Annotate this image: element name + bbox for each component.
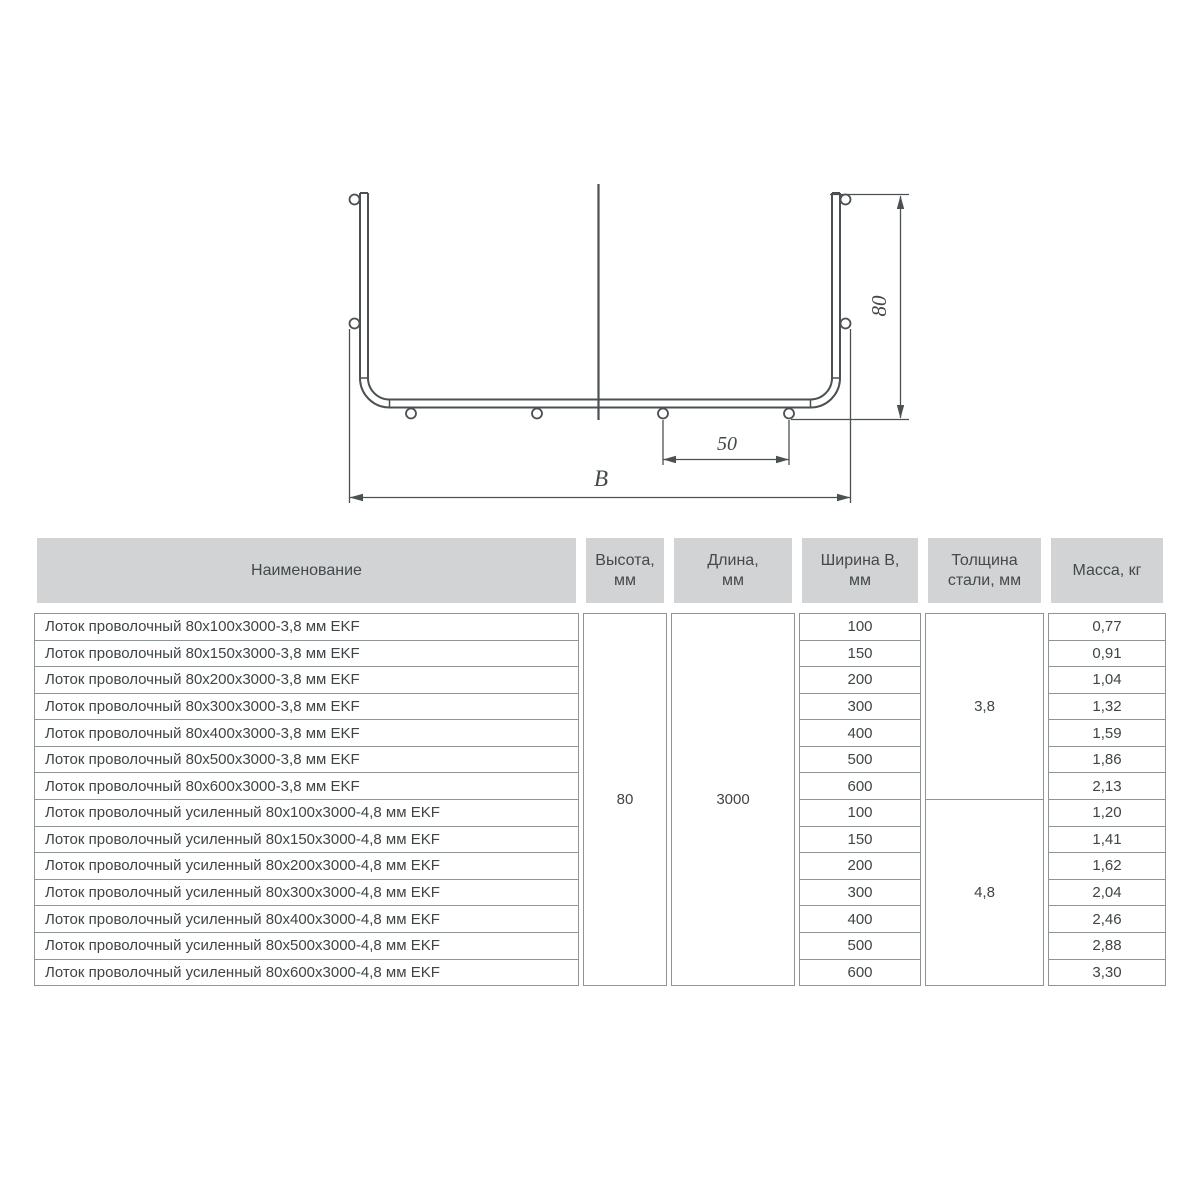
datasheet-page: 80 50 В Наименование Лоток проволочный 8… bbox=[0, 0, 1200, 1200]
header-width: Ширина В, мм bbox=[802, 538, 918, 603]
bottom-wire-4 bbox=[784, 409, 794, 419]
row-width: 400 bbox=[800, 719, 920, 746]
thickness-group-cell: 3,8 bbox=[926, 614, 1043, 799]
row-mass: 1,59 bbox=[1049, 719, 1165, 746]
row-width: 200 bbox=[800, 852, 920, 879]
dim-label-50: 50 bbox=[717, 433, 737, 455]
row-width: 150 bbox=[800, 826, 920, 853]
tray-cross-section-drawing: 80 50 В bbox=[0, 0, 1200, 533]
column-length: Длина, мм 3000 bbox=[671, 538, 795, 986]
row-name: Лоток проволочный 80x500x3000-3,8 мм EKF bbox=[35, 746, 578, 773]
row-name: Лоток проволочный 80x200x3000-3,8 мм EKF bbox=[35, 666, 578, 693]
header-thickness: Толщина стали, мм bbox=[928, 538, 1041, 603]
row-name: Лоток проволочный усиленный 80x150x3000-… bbox=[35, 826, 578, 853]
row-width: 300 bbox=[800, 693, 920, 720]
row-mass: 0,91 bbox=[1049, 640, 1165, 667]
bottom-wire-3 bbox=[658, 409, 668, 419]
row-width: 200 bbox=[800, 666, 920, 693]
mass-cells: 0,770,911,041,321,591,862,131,201,411,62… bbox=[1048, 613, 1166, 986]
arrow-b-right bbox=[837, 494, 851, 501]
arrow-50-right bbox=[776, 456, 789, 463]
length-merged-cell: 3000 bbox=[672, 614, 794, 985]
row-mass: 2,88 bbox=[1049, 932, 1165, 959]
row-mass: 0,77 bbox=[1049, 614, 1165, 640]
row-mass: 2,04 bbox=[1049, 879, 1165, 906]
row-mass: 1,86 bbox=[1049, 746, 1165, 773]
mid-wire-left bbox=[350, 319, 360, 329]
row-width: 400 bbox=[800, 905, 920, 932]
row-width: 600 bbox=[800, 772, 920, 799]
dim-label-80: 80 bbox=[867, 295, 891, 317]
mid-wire-right bbox=[841, 319, 851, 329]
row-width: 500 bbox=[800, 932, 920, 959]
header-mass: Масса, кг bbox=[1051, 538, 1163, 603]
header-length: Длина, мм bbox=[674, 538, 792, 603]
row-name: Лоток проволочный усиленный 80x500x3000-… bbox=[35, 932, 578, 959]
arrow-80-top bbox=[897, 196, 904, 210]
row-name: Лоток проволочный усиленный 80x100x3000-… bbox=[35, 799, 578, 826]
row-mass: 1,32 bbox=[1049, 693, 1165, 720]
rim-wire-right bbox=[841, 195, 851, 205]
tray-profile-outer bbox=[360, 193, 840, 408]
row-width: 600 bbox=[800, 959, 920, 986]
row-name: Лоток проволочный усиленный 80x300x3000-… bbox=[35, 879, 578, 906]
rim-wire-left bbox=[350, 195, 360, 205]
bottom-wire-2 bbox=[532, 409, 542, 419]
dim-label-b: В bbox=[594, 466, 608, 491]
header-name: Наименование bbox=[37, 538, 576, 603]
column-mass: Масса, кг 0,770,911,041,321,591,862,131,… bbox=[1048, 538, 1166, 986]
row-mass: 3,30 bbox=[1049, 959, 1165, 986]
column-height: Высота, мм 80 bbox=[583, 538, 667, 986]
arrow-b-left bbox=[350, 494, 364, 501]
row-name: Лоток проволочный 80x400x3000-3,8 мм EKF bbox=[35, 719, 578, 746]
tray-profile-inner bbox=[368, 193, 832, 400]
bottom-wire-1 bbox=[406, 409, 416, 419]
thickness-cells: 3,8 4,8 bbox=[925, 613, 1044, 986]
column-name: Наименование Лоток проволочный 80x100x30… bbox=[34, 538, 579, 986]
row-width: 100 bbox=[800, 799, 920, 826]
row-width: 100 bbox=[800, 614, 920, 640]
row-mass: 2,46 bbox=[1049, 905, 1165, 932]
row-mass: 1,20 bbox=[1049, 799, 1165, 826]
height-merged-cell: 80 bbox=[584, 614, 666, 985]
column-width: Ширина В, мм 100150200300400500600100150… bbox=[799, 538, 921, 986]
name-cells: Лоток проволочный 80x100x3000-3,8 мм EKF… bbox=[34, 613, 579, 986]
row-mass: 2,13 bbox=[1049, 772, 1165, 799]
row-name: Лоток проволочный 80x150x3000-3,8 мм EKF bbox=[35, 640, 578, 667]
length-cells: 3000 bbox=[671, 613, 795, 986]
row-mass: 1,62 bbox=[1049, 852, 1165, 879]
thickness-group-cell: 4,8 bbox=[926, 799, 1043, 985]
row-name: Лоток проволочный 80x600x3000-3,8 мм EKF bbox=[35, 772, 578, 799]
row-name: Лоток проволочный 80x100x3000-3,8 мм EKF bbox=[35, 614, 578, 640]
header-height: Высота, мм bbox=[586, 538, 664, 603]
column-thickness: Толщина стали, мм 3,8 4,8 bbox=[925, 538, 1044, 986]
row-width: 300 bbox=[800, 879, 920, 906]
spec-table: Наименование Лоток проволочный 80x100x30… bbox=[34, 538, 1166, 986]
row-width: 500 bbox=[800, 746, 920, 773]
row-name: Лоток проволочный усиленный 80x200x3000-… bbox=[35, 852, 578, 879]
row-mass: 1,41 bbox=[1049, 826, 1165, 853]
arrow-50-left bbox=[663, 456, 676, 463]
row-width: 150 bbox=[800, 640, 920, 667]
height-cells: 80 bbox=[583, 613, 667, 986]
row-name: Лоток проволочный усиленный 80x400x3000-… bbox=[35, 905, 578, 932]
row-name: Лоток проволочный 80x300x3000-3,8 мм EKF bbox=[35, 693, 578, 720]
row-mass: 1,04 bbox=[1049, 666, 1165, 693]
arrow-80-bottom bbox=[897, 405, 904, 419]
row-name: Лоток проволочный усиленный 80x600x3000-… bbox=[35, 959, 578, 986]
width-cells: 1001502003004005006001001502003004005006… bbox=[799, 613, 921, 986]
